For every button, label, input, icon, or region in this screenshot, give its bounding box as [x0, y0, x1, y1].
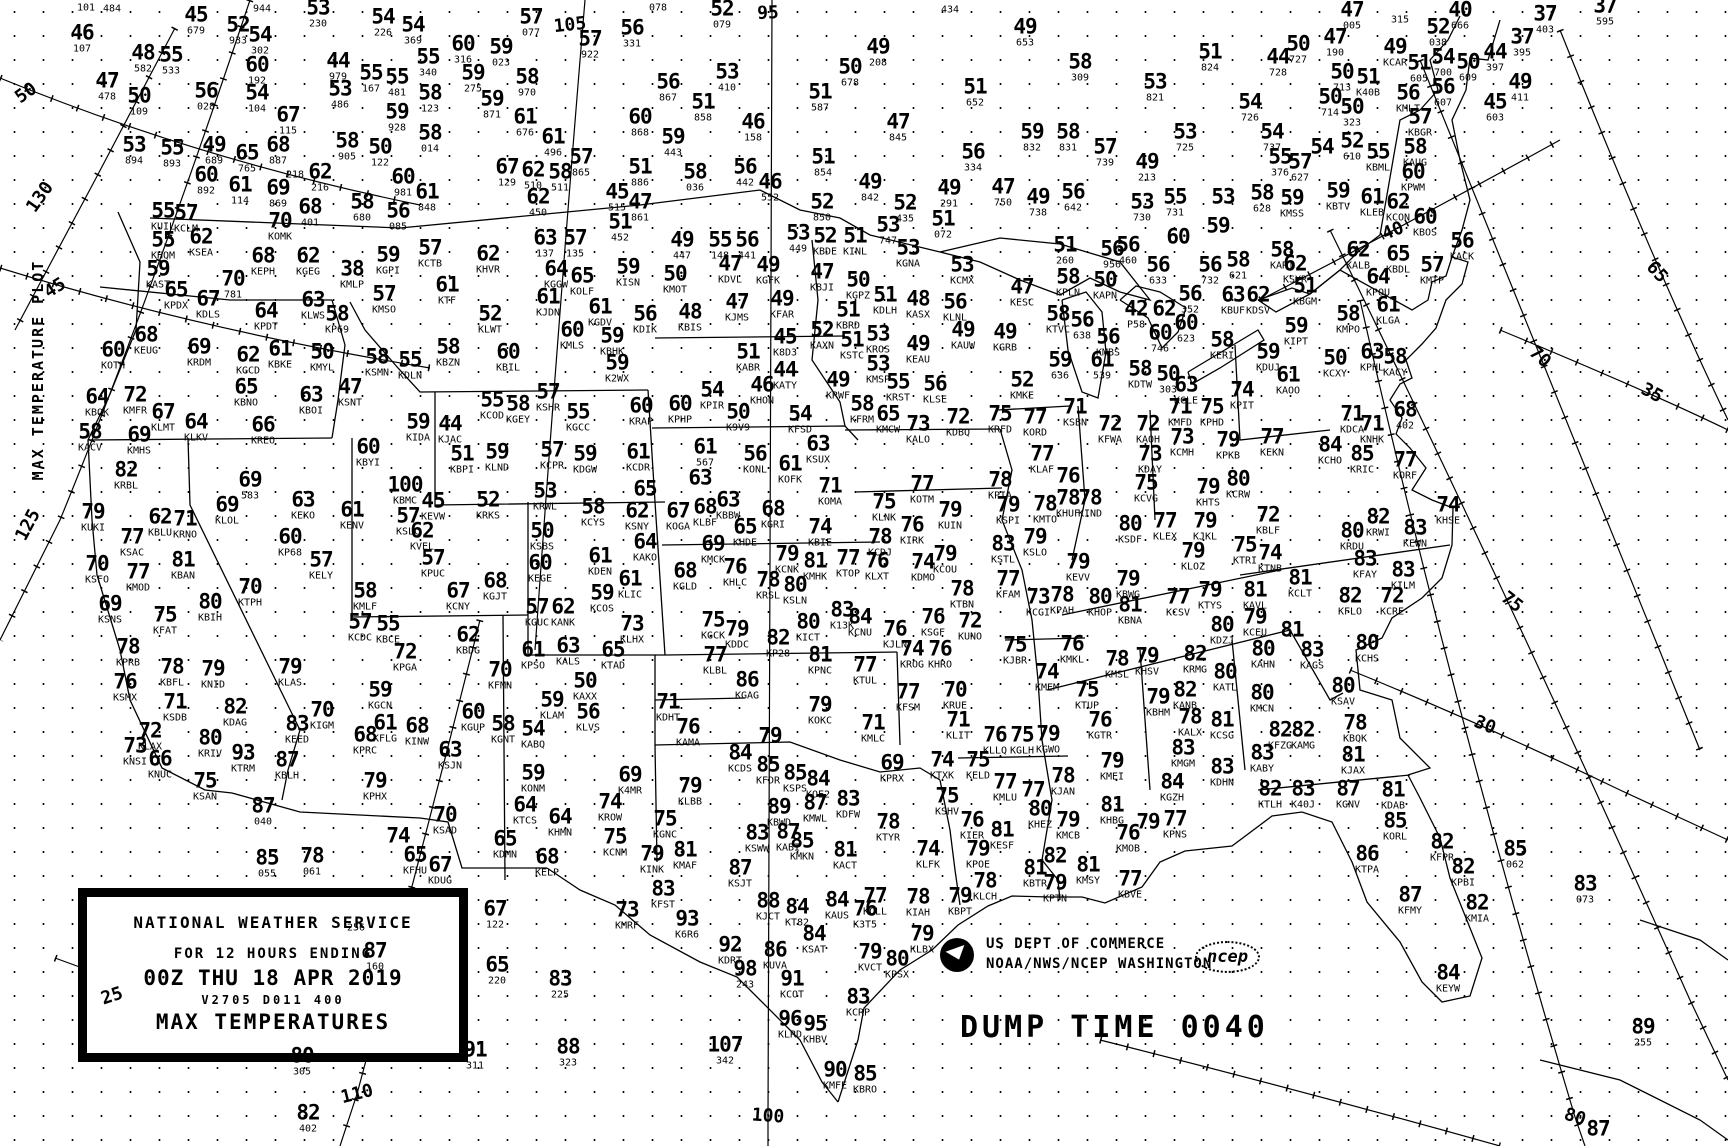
station-temp: 49 [937, 177, 960, 198]
station-temp: 58 [1336, 303, 1360, 324]
station-KLFK: 74KLFK [916, 838, 940, 870]
station-652: 51652 [963, 76, 986, 108]
station-temp: 68 [251, 245, 275, 266]
station-KPBI: 82KPBI [1451, 856, 1475, 888]
station-temp: 69 [618, 764, 642, 785]
station-temp: 85 [1350, 443, 1374, 464]
station-temp: 71 [861, 712, 885, 733]
station-KAOO: 61KAOO [1276, 364, 1300, 396]
station-temp: 77 [996, 568, 1020, 589]
station-id: 623 [1174, 334, 1197, 344]
station-temp: 51 [843, 225, 867, 246]
station-KCSG: 81KCSG [1210, 709, 1234, 741]
station-id: 216 [308, 183, 331, 193]
station-id: KOMA [818, 497, 842, 507]
station-temp: 79 [808, 694, 832, 715]
station-temp: 75 [988, 403, 1012, 424]
station-id: KIAH [906, 908, 930, 918]
station-id: KBIE [808, 538, 832, 548]
station-id: 449 [786, 244, 809, 254]
station-temp: 83 [846, 986, 870, 1007]
station-temp: 75 [153, 604, 177, 625]
station-temp: 75 [1010, 724, 1034, 745]
station-temp: 62 [1386, 191, 1410, 212]
station-temp: 76 [113, 671, 137, 692]
station-id: KHOP [1088, 608, 1112, 618]
station-temp: 77 [703, 644, 727, 665]
station-KRIC: 85KRIC [1350, 443, 1374, 475]
station-id: KROG [900, 660, 924, 670]
station-temp: 80 [1028, 798, 1052, 819]
station-temp: 78 [1051, 765, 1075, 786]
station-temp: 79 [725, 618, 749, 639]
station-id: KOTH [101, 361, 125, 371]
station-401: 68401 [298, 196, 321, 228]
station-temp: 53 [866, 323, 890, 344]
station-id: 167 [359, 84, 382, 94]
station-temp: 83 [1391, 559, 1415, 580]
station-607: 56607 [1431, 76, 1454, 108]
station-KSHV: 75KSHV [935, 785, 959, 817]
station-temp: 75 [653, 808, 677, 829]
station-KMGM: 83KMGM [1171, 737, 1195, 769]
station-id: KEPH [251, 267, 275, 277]
station-079: 52079 [710, 0, 733, 30]
grid-label-95: 95 [757, 2, 779, 24]
station-temp: 72 [1256, 504, 1280, 525]
station-P58: 42P58 [1124, 298, 1147, 330]
station-temp: 58 [506, 393, 530, 414]
station-id: KGLH [1010, 746, 1034, 756]
station-567: 61567 [693, 436, 716, 468]
station-temp: 67 [151, 401, 175, 422]
station-temp: 45 [605, 181, 628, 202]
station-temp: 78 [906, 886, 930, 907]
station-871: 59871 [480, 88, 503, 120]
station-970: 58970 [515, 66, 538, 98]
station-KJAN: 78KJAN [1051, 765, 1075, 797]
station-id: KGEG [296, 267, 320, 277]
station-id: KACT [833, 861, 857, 871]
station-036: 58036 [683, 161, 706, 193]
station-id: 666 [1448, 21, 1471, 31]
station-KBPT: 79KBPT [948, 885, 972, 917]
station-id: 028 [194, 102, 217, 112]
station-temp: 67 [446, 580, 470, 601]
station-temp: 62 [625, 500, 649, 521]
station-id: KEAU [906, 355, 930, 365]
station-KMCN: 80KMCN [1250, 682, 1274, 714]
station-temp: 67 [495, 156, 518, 177]
station-KHON: 46KHON [750, 374, 774, 406]
station-temp: 59 [406, 411, 430, 432]
station-KBLF: 72KBLF [1256, 504, 1280, 536]
station-id: KSMX [113, 693, 137, 703]
station-temp: 71 [946, 709, 970, 730]
station-id: KGUP [461, 723, 485, 733]
station-temp: 66 [251, 414, 275, 435]
station-temp: 84 [728, 742, 752, 763]
station-id: 678 [838, 78, 861, 88]
station-temp: 60 [356, 436, 380, 457]
station-id: KRNO [173, 530, 197, 540]
station-id: K40J [1291, 800, 1315, 810]
station-temp: 44 [326, 50, 349, 71]
station-id: 824 [1198, 63, 1221, 73]
station-temp: 58 [683, 161, 706, 182]
station-id: KMEM [1035, 683, 1059, 693]
station-temp: 50 [368, 136, 391, 157]
station-230: 53230 [306, 0, 329, 29]
station-KAMG: 82KAMG [1291, 719, 1315, 751]
station-id: KHMN [548, 828, 572, 838]
station-KAXN: 52KAXN [810, 319, 834, 351]
station-temp: 61 [268, 338, 292, 359]
station-KCXY: 50KCXY [1323, 347, 1347, 379]
station-id: KPGA [393, 663, 417, 673]
station-id: KSGF [921, 628, 945, 638]
station-id: KRWL [533, 502, 557, 512]
station-id: KMAF [673, 861, 697, 871]
station-temp: 71 [818, 475, 842, 496]
station-temp: 51 [836, 299, 860, 320]
station-id: KFRM [850, 415, 874, 425]
station-KTF: 61KTF [435, 274, 458, 306]
station-KTNB: 74KTNB [1258, 542, 1282, 574]
station-temp: 58 [548, 161, 571, 182]
station-temp: 82 [1451, 856, 1475, 877]
station-KDVL: 47KDVL [718, 253, 742, 285]
station-id: 208 [866, 58, 889, 68]
station-738: 49738 [1026, 186, 1049, 218]
station-680: 58680 [350, 191, 373, 223]
station-id: KBOI [299, 406, 323, 416]
station-KDLS: 67KDLS [196, 288, 220, 320]
station-KMLC: 71KMLC [861, 712, 885, 744]
station-temp: 51 [1053, 234, 1076, 255]
station-id: KMEI [1100, 772, 1124, 782]
station-id: KCHO [1318, 456, 1342, 466]
station-temp: 50 [1340, 96, 1363, 117]
station-temp: 91 [463, 1039, 486, 1060]
station-id: KJAN [1051, 787, 1075, 797]
station-temp: 79 [996, 494, 1020, 515]
station-KBOK: 64KBOK [85, 386, 109, 418]
station-id: KTOP [836, 569, 860, 579]
station-temp: 83 [991, 533, 1015, 554]
station-id: KATL [1213, 683, 1237, 693]
station-temp: 59 [485, 441, 509, 462]
station-temp: 62 [551, 596, 575, 617]
station-id: KTPA [1355, 865, 1379, 875]
station-id: KPLN [1056, 288, 1080, 298]
station-K3T5: 76K3T5 [853, 898, 877, 930]
station-id: 636 [1048, 371, 1071, 381]
station-temp: 58 [1403, 136, 1427, 157]
station-KRMG: 82KRMG [1183, 643, 1207, 675]
station-id: KFDR [756, 776, 780, 786]
station-id: KDGW [573, 465, 597, 475]
station-temp: 54 [248, 24, 271, 45]
station-id: KALS [556, 657, 580, 667]
station-id: KPNS [1163, 830, 1187, 840]
station-KIGM: 70KIGM [310, 699, 334, 731]
station-id: KRWI [1366, 528, 1390, 538]
station-id: KLMT [151, 423, 175, 433]
station-id: KJCT [756, 912, 780, 922]
station-temp: 47 [725, 291, 749, 312]
station-temp: 63 [1174, 374, 1198, 395]
station-id: KBIL [496, 363, 520, 373]
station-KRWI: 82KRWI [1366, 506, 1390, 538]
station-59: 59 [1206, 215, 1229, 236]
station-temp: 83 [1171, 737, 1195, 758]
station-temp: 82 [223, 696, 247, 717]
station-KBQK: 78KBQK [1343, 712, 1367, 744]
station-63: 63 [688, 467, 711, 488]
station-666: 40666 [1448, 0, 1471, 31]
station-temp: 55 [566, 401, 590, 422]
station-291: 49291 [937, 177, 960, 209]
station-id: KPIR [700, 401, 724, 411]
station-KBIL: 60KBIL [496, 341, 520, 373]
station-id: 158 [741, 133, 764, 143]
legend-product-name: MAX TEMPERATURES [87, 1010, 459, 1034]
station-225: 83225 [548, 968, 571, 1000]
station-KTBN: 78KTBN [950, 578, 974, 610]
station-886: 51886 [628, 156, 651, 188]
station-KSFO: 70KSFO [85, 553, 109, 585]
station-id: KCNY [446, 602, 470, 612]
station-temp: 59 [605, 352, 629, 373]
station-id: KBOK [85, 408, 109, 418]
station-temp: 61 [588, 545, 612, 566]
station-id: 607 [1431, 98, 1454, 108]
station-temp: 89 [1631, 1016, 1654, 1037]
station-temp: 80 [198, 727, 222, 748]
station-KPUC: 57KPUC [421, 547, 445, 579]
station-KLMT: 67KLMT [151, 401, 175, 433]
station-id: KAMA [676, 738, 700, 748]
station-temp: 61 [415, 181, 438, 202]
station-53: 53 [1211, 186, 1234, 207]
station-temp: 81 [803, 550, 827, 571]
station-temp: 69 [238, 469, 261, 490]
station-id: KFAR [770, 310, 794, 320]
station-KBZN: 58KBZN [436, 336, 460, 368]
station-KBOI: 63KBOI [299, 384, 323, 416]
station-KACY: 58KACY [1383, 346, 1407, 378]
station-temp: 53 [328, 78, 351, 99]
station-id: KHVR [476, 265, 500, 275]
station-65: 65 [633, 478, 656, 499]
station-KATL: 80KATL [1213, 661, 1237, 693]
station-id: KLOZ [1181, 562, 1205, 572]
station-KLEX: 77KLEX [1153, 510, 1177, 542]
station-395: 37395 [1510, 26, 1533, 58]
station-id: KRKS [476, 511, 500, 521]
station-865: 57865 [569, 146, 592, 178]
station-id: 680 [350, 213, 373, 223]
station-KBIE: 74KBIE [808, 516, 832, 548]
station-KSEA: 62KSEA [189, 226, 213, 258]
station-temp: 51 [840, 329, 864, 350]
station-temp: 86 [1355, 843, 1379, 864]
station-KMCK: 69KMCK [701, 533, 725, 565]
station-temp: 74 [916, 838, 940, 859]
station-KDHN: 83KDHN [1210, 756, 1234, 788]
station-id: KTYS [1198, 601, 1222, 611]
station-id: KBJI [810, 283, 834, 293]
station-id: KSNS [98, 615, 122, 625]
station-id: KUKI [81, 523, 105, 533]
station-KSNY: 62KSNY [625, 500, 649, 532]
station-725: 53725 [1173, 121, 1196, 153]
station-temp: 78 [116, 636, 140, 657]
station-KGAG: 86KGAG [735, 669, 759, 701]
station-temp: 75 [935, 785, 959, 806]
station-id: KAOO [1276, 386, 1300, 396]
station-id: KSJT [728, 879, 752, 889]
station-KRIV: 80KRIV [198, 727, 222, 759]
station-temp: 69 [880, 752, 904, 773]
station-temp: 57 [372, 283, 396, 304]
station-832: 59832 [1020, 121, 1043, 153]
station-temp: 79 [933, 543, 957, 564]
station-KSGF: 76KSGF [921, 606, 945, 638]
station-temp: 61 [536, 286, 560, 307]
station-KBGM: 51KBGM [1293, 275, 1317, 307]
station-id: KBRO [853, 1085, 877, 1095]
station-KMHS: 69KMHS [127, 424, 151, 456]
station-KEUG: 68KEUG [134, 324, 158, 356]
station-temp: 68 [535, 846, 559, 867]
station-KBMC: 100KBMC [388, 474, 423, 506]
station-temp: 63 [688, 467, 711, 488]
station-id: KINL [843, 247, 867, 257]
station-id: KMFE [823, 1081, 847, 1091]
station-id: 225 [548, 990, 571, 1000]
station-temp: 53 [786, 222, 809, 243]
station-KMFR: 72KMFR [123, 384, 147, 416]
station-id: KMKL [1060, 655, 1084, 665]
station-KTYR: 78KTYR [876, 811, 900, 843]
station-temp: 53 [1130, 191, 1153, 212]
station-KMAF: 81KMAF [673, 839, 697, 871]
station-KCOU: 79KCOU [933, 543, 957, 575]
station-temp: 56 [923, 373, 947, 394]
station-KDAG: 82KDAG [223, 696, 247, 728]
station-id: 539 [1090, 371, 1113, 381]
station-627: 57627 [1288, 151, 1311, 183]
station-KLOZ: 79KLOZ [1181, 540, 1205, 572]
station-id: 638 [1070, 331, 1093, 341]
station-id: 305 [290, 1067, 313, 1077]
station-temp: 65 [485, 954, 508, 975]
station-temp: 52 [810, 319, 834, 340]
station-id: 893 [160, 159, 183, 169]
station-temp: 58 [335, 130, 358, 151]
station-id: KRWF [826, 391, 850, 401]
station-temp: 57 [421, 547, 445, 568]
station-KMKE: 52KMKE [1010, 369, 1034, 401]
station-KLVS: 56KLVS [576, 701, 600, 733]
station-KBVE: 77KBVE [1118, 868, 1142, 900]
station-temp: 50 [573, 670, 597, 691]
station-KRBL: 82KRBL [114, 459, 138, 491]
station-temp: 61 [1090, 349, 1113, 370]
station-id: KCGI [1026, 608, 1050, 618]
station-id: KROW [598, 813, 622, 823]
station-id: 603 [1483, 113, 1506, 123]
station-temp: 52 [813, 225, 837, 246]
station-KPIR: 54KPIR [700, 379, 724, 411]
station-id: 342 [708, 1056, 743, 1066]
station-id: 725 [1173, 143, 1196, 153]
station-KGLD: 68KGLD [673, 560, 697, 592]
station-temp: 54 [1260, 121, 1283, 142]
station-temp: 57 [578, 28, 601, 49]
station-KMOT: 50KMOT [663, 263, 687, 295]
station-temp: 64 [633, 531, 657, 552]
station-id: 653 [1013, 38, 1036, 48]
station-temp: 65 [403, 844, 427, 865]
station-temp: 63 [438, 739, 462, 760]
station-KHSV: 79KHSV [1135, 645, 1159, 677]
station-id: KPBI [1451, 878, 1475, 888]
station-KDDC: 79KDDC [725, 618, 749, 650]
station-temp: 58 [1046, 303, 1070, 324]
station-KBAN: 81KBAN [171, 549, 195, 581]
station-642: 56642 [1061, 181, 1084, 213]
station-KAGS: 83KAGS [1300, 639, 1324, 671]
station-temp: 79 [775, 543, 799, 564]
station-temp: 70 [310, 699, 334, 720]
station-id: 395 [1510, 48, 1533, 58]
station-temp: 62 [521, 159, 544, 180]
station-temp: 56 [735, 229, 758, 250]
station-id: KCAR [1383, 58, 1407, 68]
station-KSMX: 76KSMX [113, 671, 137, 703]
station-KNID: 79KNID [201, 658, 225, 690]
station-temp: 83 [1573, 873, 1596, 894]
station-id: KOMK [268, 232, 292, 242]
station-KDFW: 83KDFW [836, 788, 860, 820]
station-id: KGPI [376, 266, 400, 276]
station-443: 59443 [661, 126, 684, 158]
station-temp: 50 [663, 263, 687, 284]
station-id: KBPI [450, 465, 474, 475]
station-KICT: 80KICT [796, 611, 820, 643]
station-id: KCON [1386, 213, 1410, 223]
station-KP28: 82KP28 [766, 627, 790, 659]
station-831: 58831 [1056, 121, 1079, 153]
station-temp: 61 [1276, 364, 1300, 385]
station-id: 679 [184, 26, 207, 36]
station-id: 481 [385, 88, 408, 98]
station-id: KACY [1383, 368, 1407, 378]
station-temp: 56 [1178, 283, 1201, 304]
station-id: KAGS [1300, 661, 1324, 671]
station-temp: 60 [668, 393, 692, 414]
station-id: KFZG [1268, 741, 1292, 751]
station-KPIT: 74KPIT [1230, 379, 1254, 411]
station-id: KESC [1010, 298, 1034, 308]
station-temp: 79 [1181, 540, 1205, 561]
station-temp: 55 [385, 66, 408, 87]
station-id: KP28 [766, 649, 790, 659]
station-id: KAXN [810, 341, 834, 351]
